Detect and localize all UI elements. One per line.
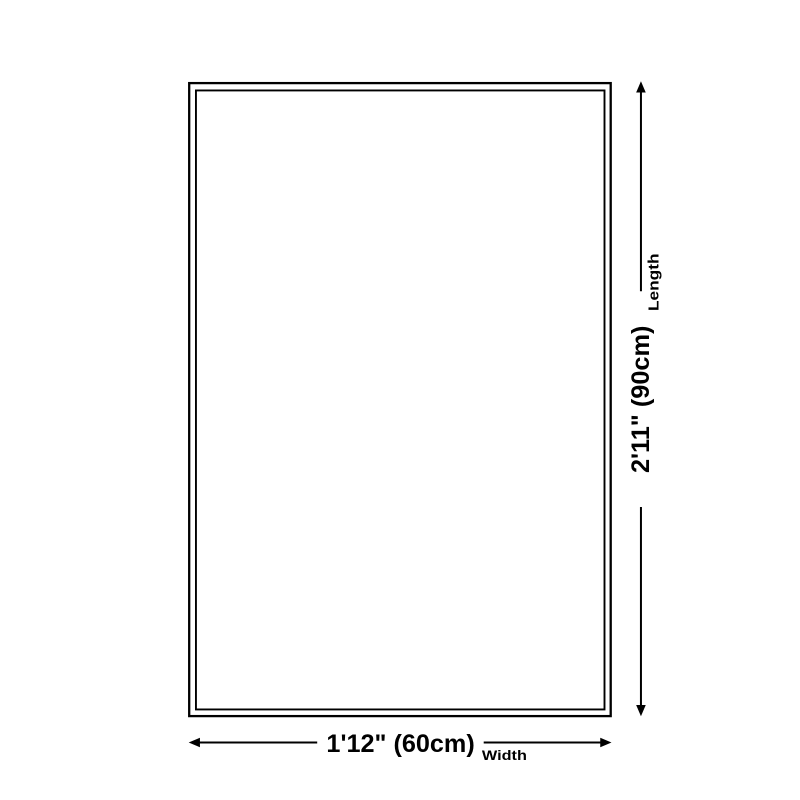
svg-text:Width: Width	[482, 747, 527, 763]
svg-text:Length: Length	[646, 254, 663, 312]
svg-text:1'12" (60cm): 1'12" (60cm)	[326, 730, 474, 758]
svg-text:2'11" (90cm): 2'11" (90cm)	[627, 326, 655, 474]
